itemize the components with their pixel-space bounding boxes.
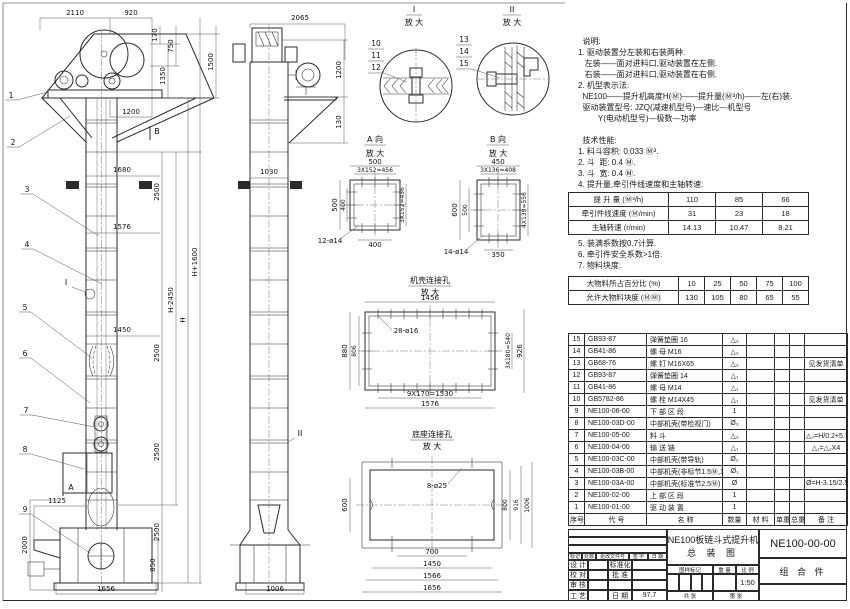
dim-label: 1350 bbox=[159, 67, 167, 85]
dim-label: 600 bbox=[451, 203, 459, 216]
mark-box bbox=[702, 574, 713, 591]
table-cell: △₁ bbox=[723, 370, 747, 382]
rev-header-date: 日 期 bbox=[648, 553, 667, 560]
table-cell: △₁ bbox=[723, 394, 747, 406]
table-cell bbox=[747, 358, 775, 370]
table-cell: 名 称 bbox=[647, 514, 723, 526]
balloon-label: 2 bbox=[11, 138, 16, 147]
note-line: 1. 驱动装置分左装和右装两种. bbox=[578, 47, 846, 58]
table-cell bbox=[790, 370, 805, 382]
dim-label: 1500 bbox=[207, 53, 215, 71]
dim-label: 1450 bbox=[113, 326, 131, 334]
dim-label: 500 bbox=[331, 198, 339, 211]
note-line: 6. 牵引件安全系数>1倍. bbox=[578, 249, 846, 260]
role-review: 审 核 bbox=[568, 580, 588, 590]
table-cell: 1 bbox=[723, 502, 747, 514]
table-cell: GB93-87 bbox=[585, 370, 647, 382]
table-cell: 1 bbox=[569, 502, 585, 514]
table-cell: 代 号 bbox=[585, 514, 647, 526]
table-cell bbox=[790, 406, 805, 418]
table-cell: 中部机壳(带导轨) bbox=[647, 454, 723, 466]
dim-label: 500 bbox=[368, 158, 381, 166]
hole-callout: 12-ø14 bbox=[318, 237, 343, 245]
section-mark-a: A bbox=[68, 483, 74, 492]
table-cell bbox=[747, 466, 775, 478]
table-row: 允许大物料块度 (ⓂⓂ)130105806555 bbox=[569, 291, 809, 305]
table-cell: 驱 动 装 置 bbox=[647, 502, 723, 514]
table-cell: 2 bbox=[569, 490, 585, 502]
table-cell: NE100-03B-00 bbox=[585, 466, 647, 478]
dim-label: 9X170=1530 bbox=[407, 390, 453, 398]
detail-subtitle: 放 大 bbox=[489, 148, 508, 158]
table-cell: 5 bbox=[569, 454, 585, 466]
table-row: 3NE100-03A-00中部机壳(标准节2.5Ⓜ)ØØ=H-3.15/2.5 bbox=[569, 478, 848, 490]
table-cell bbox=[805, 418, 848, 430]
dim-label: 2500 bbox=[153, 443, 161, 461]
balloon-label: 9 bbox=[23, 505, 28, 514]
weight-value bbox=[713, 574, 736, 591]
sign-cell bbox=[588, 570, 608, 580]
balloon-label: 3 bbox=[25, 185, 30, 194]
table-cell: Ø₁ bbox=[723, 466, 747, 478]
table-cell bbox=[747, 418, 775, 430]
table-cell: 总重 bbox=[790, 514, 805, 526]
dim-label: H-2450 bbox=[167, 287, 175, 313]
table-row: 序号代 号名 称数量材 料单重总重备 注 bbox=[569, 514, 848, 526]
dimensions-side: 2065 1200 130 1030 1006 II bbox=[246, 14, 348, 594]
table-cell bbox=[775, 454, 790, 466]
table-cell: 80 bbox=[731, 291, 757, 305]
table-cell bbox=[775, 394, 790, 406]
dim-label: 1656 bbox=[97, 585, 115, 593]
table-cell: 105 bbox=[705, 291, 731, 305]
title-block: 标记 处数 更改文件号 签 字 日 期 设 计 标准化 校 对 批 准 审 核 … bbox=[568, 529, 847, 601]
table-cell: △₁ bbox=[723, 442, 747, 454]
dim-label: 1200 bbox=[122, 108, 140, 116]
table-cell bbox=[775, 370, 790, 382]
detail-mark-i: I bbox=[65, 278, 67, 287]
table-cell: 10.47 bbox=[716, 221, 763, 235]
table-cell: 料 斗 bbox=[647, 430, 723, 442]
table-cell: 1 bbox=[723, 490, 747, 502]
table-cell: 14.13 bbox=[669, 221, 716, 235]
table-row: 10GB5782-86螺 栓 M14X45△₁见发货清单 bbox=[569, 394, 848, 406]
role-standard: 标准化 bbox=[608, 560, 632, 570]
hole-callout: 8-ø25 bbox=[427, 482, 447, 490]
dim-label: 916 bbox=[513, 499, 520, 511]
table-cell: Ø=H-3.15/2.5 bbox=[805, 478, 848, 490]
sign-cell bbox=[632, 570, 667, 580]
performance-table: 提 升 量 (Ⓜ³/h)1108566牵引件线速度 (Ⓜ/min)312318主… bbox=[568, 192, 809, 235]
dim-label: 750 bbox=[167, 39, 175, 52]
part-class: 组 合 件 bbox=[759, 558, 847, 584]
table-cell: 15 bbox=[569, 334, 585, 346]
table-row: 提 升 量 (Ⓜ³/h)1108566 bbox=[569, 193, 809, 207]
note-line: 2. 机型表示法: bbox=[578, 80, 846, 91]
scale-value: 1:50 bbox=[736, 574, 759, 591]
table-cell: 中部机壳(带检视门) bbox=[647, 418, 723, 430]
note-line: 7. 物料块度: bbox=[578, 260, 846, 271]
table-cell bbox=[805, 502, 848, 514]
table-cell: 8.21 bbox=[763, 221, 809, 235]
mark-box bbox=[667, 574, 679, 591]
note-line: NE100——提升机高度H(Ⓜ)——提升量(Ⓜ³/h)——左(右)装. bbox=[578, 91, 846, 102]
table-row: 1NE100-01-00驱 动 装 置1 bbox=[569, 502, 848, 514]
table-row: 7NE100-05-00料 斗△₂△₂=H/0.2+5.75 bbox=[569, 430, 848, 442]
dim-label: 2110 bbox=[66, 9, 84, 17]
table-row: 15GB93-87弹簧垫圈 16△₂ bbox=[569, 334, 848, 346]
wall-pad bbox=[290, 181, 302, 189]
table-cell: 8 bbox=[569, 418, 585, 430]
dim-label: 130 bbox=[335, 115, 343, 128]
table-cell bbox=[747, 382, 775, 394]
dim-label: 1576 bbox=[113, 223, 131, 231]
table-cell bbox=[747, 454, 775, 466]
detail-i: I 放 大 10 11 12 bbox=[368, 5, 452, 122]
detail-title: 机壳连接孔 bbox=[410, 275, 450, 285]
balloon-label: 4 bbox=[25, 240, 30, 249]
table-cell bbox=[790, 478, 805, 490]
table-row: 8NE100-03D-00中部机壳(带检视门)Ø₃ bbox=[569, 418, 848, 430]
balloon-label: 6 bbox=[23, 349, 28, 358]
table-cell: NE100-04-00 bbox=[585, 442, 647, 454]
table-cell bbox=[790, 454, 805, 466]
dim-label: H+1600 bbox=[191, 248, 199, 277]
sign-cell bbox=[632, 560, 667, 570]
table-cell bbox=[805, 382, 848, 394]
table-cell bbox=[775, 430, 790, 442]
sign-cell bbox=[588, 580, 608, 590]
drawing-no: NE100-00-00 bbox=[759, 529, 847, 558]
table-cell: △₂ bbox=[723, 430, 747, 442]
wall-pad bbox=[66, 181, 79, 189]
feed-chute bbox=[34, 540, 60, 558]
dim-label: 700 bbox=[425, 548, 438, 556]
table-row: 6NE100-04-00输 送 链△₁△₁=△₂X4 bbox=[569, 442, 848, 454]
table-cell: 55 bbox=[783, 291, 809, 305]
balloon-label: 1 bbox=[9, 91, 14, 100]
note-line: 2. 斗 距: 0.4 Ⓜ. bbox=[578, 157, 846, 168]
table-cell bbox=[790, 394, 805, 406]
table-cell bbox=[775, 406, 790, 418]
revision-row bbox=[568, 545, 667, 553]
table-cell bbox=[805, 490, 848, 502]
note-line: 说明: bbox=[578, 36, 846, 47]
table-cell: 100 bbox=[783, 277, 809, 291]
table-cell bbox=[790, 346, 805, 358]
table-cell: 130 bbox=[679, 291, 705, 305]
balloon-label: 5 bbox=[23, 303, 28, 312]
detail-subtitle: 放 大 bbox=[405, 17, 424, 27]
revision-row bbox=[568, 529, 667, 537]
table-cell: 10 bbox=[679, 277, 705, 291]
dim-label: 1566 bbox=[423, 572, 441, 580]
table-cell: 11 bbox=[569, 382, 585, 394]
table-cell bbox=[790, 334, 805, 346]
table-cell bbox=[747, 490, 775, 502]
dim-label: 806 bbox=[351, 345, 358, 357]
dim-label: 920 bbox=[124, 9, 137, 17]
table-cell bbox=[805, 346, 848, 358]
table-row: 大物料所占百分比 (%)10255075100 bbox=[569, 277, 809, 291]
table-cell: 材 料 bbox=[747, 514, 775, 526]
table-cell: 弹簧垫圈 16 bbox=[647, 334, 723, 346]
table-cell bbox=[790, 358, 805, 370]
table-cell: GB5782-86 bbox=[585, 394, 647, 406]
table-cell: 螺 母 M16 bbox=[647, 346, 723, 358]
table-cell: Ø₂ bbox=[723, 454, 747, 466]
table-cell: 50 bbox=[731, 277, 757, 291]
notes-block: 说明:1. 驱动装置分左装和右装两种. 左装——面对进料口,驱动装置在左侧. 右… bbox=[578, 36, 846, 190]
dim-label: 4X139=556 bbox=[521, 192, 528, 228]
detail-title: 底座连接孔 bbox=[412, 429, 452, 439]
table-cell bbox=[775, 490, 790, 502]
dim-label: 350 bbox=[491, 251, 504, 259]
mark-box bbox=[691, 574, 702, 591]
table-cell bbox=[747, 346, 775, 358]
table-cell bbox=[790, 442, 805, 454]
dim-label: 880 bbox=[341, 344, 349, 357]
detail-b-view: B 向 放 大 450 3X136=408 600 500 4X139=556 … bbox=[444, 134, 528, 259]
dim-label: 1030 bbox=[260, 168, 278, 176]
table-cell: 12 bbox=[569, 370, 585, 382]
detail-title: II bbox=[510, 5, 515, 14]
dim-label: 1006 bbox=[266, 585, 284, 593]
detail-a-view: A 向 放 大 500 3X152=456 500 400 3X152=456 … bbox=[318, 134, 408, 249]
table-cell bbox=[747, 478, 775, 490]
table-row: 牵引件线速度 (Ⓜ/min)312318 bbox=[569, 207, 809, 221]
table-cell bbox=[775, 502, 790, 514]
table-cell: NE100-03D-00 bbox=[585, 418, 647, 430]
wall-pad bbox=[238, 181, 250, 189]
wall-pad bbox=[139, 181, 152, 189]
detail-mark-ii: II bbox=[298, 429, 303, 438]
dim-label: 1125 bbox=[48, 497, 66, 505]
rev-header-count: 处数 bbox=[582, 553, 596, 560]
table-cell: 螺 母 M14 bbox=[647, 382, 723, 394]
dim-label: 1456 bbox=[421, 294, 439, 302]
detail-casing-holes: 机壳连接孔 放 大 1456 28-ø16 880 806 3X180=540 … bbox=[341, 275, 524, 408]
table-cell: NE100-02-00 bbox=[585, 490, 647, 502]
role-check: 校 对 bbox=[568, 570, 588, 580]
drawing-canvas: 2110 920 170 750 1350 1500 1200 1680 157… bbox=[0, 0, 565, 609]
table-cell: 弹簧垫圈 14 bbox=[647, 370, 723, 382]
table-cell: 见发货清单 bbox=[805, 394, 848, 406]
table-cell bbox=[805, 454, 848, 466]
table-row: 9NE100-06-00下 部 区 段1 bbox=[569, 406, 848, 418]
table-cell: 备 注 bbox=[805, 514, 848, 526]
drawing-title-line2: 总 装 图 bbox=[687, 547, 739, 560]
drawing-title-line1: NE100板链斗式提升机 bbox=[668, 534, 759, 547]
table-cell bbox=[790, 382, 805, 394]
table-cell bbox=[747, 370, 775, 382]
table-cell: Ø₃ bbox=[723, 418, 747, 430]
dim-label: 926 bbox=[516, 344, 524, 358]
section-mark-b: B bbox=[154, 127, 160, 136]
table-cell: 65 bbox=[757, 291, 783, 305]
note-line: 1. 料斗容积: 0.033 Ⓜ³. bbox=[578, 146, 846, 157]
table-cell bbox=[747, 334, 775, 346]
table-cell: 见发货清单 bbox=[805, 358, 848, 370]
role-design: 设 计 bbox=[568, 560, 588, 570]
table-row: 主轴转速 (r/min)14.1310.478.21 bbox=[569, 221, 809, 235]
table-cell: 螺 栓 M14X45 bbox=[647, 394, 723, 406]
table-cell bbox=[747, 394, 775, 406]
dim-label: 2000 bbox=[21, 536, 29, 554]
table-cell bbox=[790, 502, 805, 514]
table-cell: NE100-03C-00 bbox=[585, 454, 647, 466]
empty-cell bbox=[759, 584, 847, 601]
table-cell bbox=[775, 382, 790, 394]
drawing-sheet: 2110 920 170 750 1350 1500 1200 1680 157… bbox=[0, 0, 850, 609]
boot-section bbox=[28, 528, 158, 590]
drawing-title: NE100板链斗式提升机 总 装 图 bbox=[667, 529, 759, 565]
table-cell: 中部机壳(标准节2.5Ⓜ) bbox=[647, 478, 723, 490]
table-cell: GB41-86 bbox=[585, 382, 647, 394]
balloon-label: 14 bbox=[459, 47, 469, 56]
balloon-label: 15 bbox=[459, 59, 469, 68]
dim-label: 400 bbox=[368, 241, 381, 249]
side-view: 2065 1200 130 1030 1006 II bbox=[230, 14, 348, 594]
rev-header-sign: 签 字 bbox=[629, 553, 648, 560]
dim-label: 3X152=456 bbox=[357, 167, 393, 174]
weight-header: 重 量 bbox=[713, 565, 736, 574]
table-cell: 螺 钉 M16X65 bbox=[647, 358, 723, 370]
table-cell: Ø bbox=[723, 478, 747, 490]
detail-base-holes: 底座连接孔 放 大 8-ø25 600 800 916 1006 700 145… bbox=[341, 429, 532, 592]
dim-label: 500 bbox=[462, 204, 469, 216]
dim-label: 800 bbox=[502, 499, 509, 511]
table-row: 14GB41-86螺 母 M16△₂ bbox=[569, 346, 848, 358]
table-cell: △₁=△₂X4 bbox=[805, 442, 848, 454]
table-cell: 主轴转速 (r/min) bbox=[569, 221, 669, 235]
table-cell: 上 部 区 段 bbox=[647, 490, 723, 502]
table-cell: 输 送 链 bbox=[647, 442, 723, 454]
table-cell: 14 bbox=[569, 346, 585, 358]
table-row: 11GB41-86螺 母 M14△₁ bbox=[569, 382, 848, 394]
balloon-label: 10 bbox=[371, 39, 381, 48]
table-cell: GB41-86 bbox=[585, 346, 647, 358]
table-cell: 66 bbox=[763, 193, 809, 207]
dim-label: 1200 bbox=[335, 61, 343, 79]
revision-row bbox=[568, 537, 667, 545]
dim-label: 1656 bbox=[423, 584, 441, 592]
sample-mark-header: 图样标记 bbox=[667, 565, 713, 574]
dim-label: 450 bbox=[491, 158, 504, 166]
dim-label: 3X152=456 bbox=[399, 187, 406, 223]
table-cell: NE100-03A-00 bbox=[585, 478, 647, 490]
table-cell: 110 bbox=[669, 193, 716, 207]
dim-label: 2065 bbox=[291, 14, 309, 22]
table-row: 5NE100-03C-00中部机壳(带导轨)Ø₂ bbox=[569, 454, 848, 466]
table-cell bbox=[775, 358, 790, 370]
table-cell: 3 bbox=[569, 478, 585, 490]
table-cell: 31 bbox=[669, 207, 716, 221]
table-row: 12GB93-87弹簧垫圈 14△₁ bbox=[569, 370, 848, 382]
table-cell: 9 bbox=[569, 406, 585, 418]
table-cell: 1 bbox=[723, 406, 747, 418]
table-cell: 10 bbox=[569, 394, 585, 406]
table-cell bbox=[805, 406, 848, 418]
notes-block-2: 5. 装满系数按0.7计算.6. 牵引件安全系数>1倍.7. 物料块度: bbox=[578, 238, 846, 271]
table-cell: 单重 bbox=[775, 514, 790, 526]
table-cell bbox=[775, 346, 790, 358]
table-cell: 中部机壳(非标节1.5Ⓜ,1Ⓜ) bbox=[647, 466, 723, 478]
detail-title: B 向 bbox=[490, 134, 506, 144]
detail-subtitle: 放 大 bbox=[423, 441, 442, 451]
note-line: 3. 斗 宽: 0.4 Ⓜ. bbox=[578, 168, 846, 179]
table-cell: 提 升 量 (Ⓜ³/h) bbox=[569, 193, 669, 207]
role-approve: 批 准 bbox=[608, 570, 632, 580]
note-line: 5. 装满系数按0.7计算. bbox=[578, 238, 846, 249]
table-cell bbox=[775, 478, 790, 490]
detail-title: A 向 bbox=[367, 134, 383, 144]
table-cell: 大物料所占百分比 (%) bbox=[569, 277, 679, 291]
scale-header: 比 例 bbox=[736, 565, 759, 574]
balloon-label: 13 bbox=[459, 35, 469, 44]
table-cell bbox=[790, 418, 805, 430]
table-cell bbox=[805, 334, 848, 346]
bom-table: 15GB93-87弹簧垫圈 16△₂14GB41-86螺 母 M16△₂13GB… bbox=[568, 333, 848, 526]
dim-label: 1006 bbox=[524, 497, 531, 512]
note-line: 驱动装置型号: JZQ(减速机型号)—速比—机型号 bbox=[578, 102, 846, 113]
table-cell: 75 bbox=[757, 277, 783, 291]
detail-subtitle: 放 大 bbox=[503, 17, 522, 27]
boot-section-side bbox=[230, 505, 310, 590]
dim-label: H bbox=[179, 317, 187, 322]
dim-label: 1680 bbox=[113, 166, 131, 174]
table-cell: NE100-06-00 bbox=[585, 406, 647, 418]
detail-subtitle: 放 大 bbox=[366, 148, 385, 158]
note-line: 技术性能: bbox=[578, 135, 846, 146]
note-line: 4. 提升量,牵引件线速度和主轴转速: bbox=[578, 179, 846, 190]
dim-label: 1450 bbox=[423, 560, 441, 568]
table-cell bbox=[747, 502, 775, 514]
dim-label: 3X180=540 bbox=[505, 333, 512, 369]
lump-size-table: 大物料所占百分比 (%)10255075100允许大物料块度 (ⓂⓂ)13010… bbox=[568, 276, 809, 305]
dim-label: 400 bbox=[340, 199, 347, 211]
table-row: 4NE100-03B-00中部机壳(非标节1.5Ⓜ,1Ⓜ)Ø₁ bbox=[569, 466, 848, 478]
balloon-label: 7 bbox=[24, 406, 29, 415]
balloon-label: 8 bbox=[23, 445, 28, 454]
mark-box bbox=[679, 574, 691, 591]
sign-cell bbox=[588, 560, 608, 570]
table-cell bbox=[747, 406, 775, 418]
table-cell: 4 bbox=[569, 466, 585, 478]
table-cell: △₂=H/0.2+5.75 bbox=[805, 430, 848, 442]
table-cell bbox=[775, 334, 790, 346]
table-cell: △₁ bbox=[723, 382, 747, 394]
table-cell: GB93-87 bbox=[585, 334, 647, 346]
table-cell bbox=[747, 430, 775, 442]
balloon-label: 12 bbox=[371, 63, 381, 72]
dim-label: 600 bbox=[341, 498, 349, 511]
table-cell: 7 bbox=[569, 430, 585, 442]
note-line bbox=[578, 124, 846, 135]
rev-header-doc: 更改文件号 bbox=[596, 553, 629, 560]
table-cell: 数量 bbox=[723, 514, 747, 526]
dim-label: 2500 bbox=[153, 344, 161, 362]
sign-cell bbox=[632, 580, 667, 590]
note-line: 左装——面对进料口,驱动装置在左侧. bbox=[578, 58, 846, 69]
table-cell: 23 bbox=[716, 207, 763, 221]
hole-callout: 14-ø14 bbox=[444, 248, 469, 256]
table-cell: 85 bbox=[716, 193, 763, 207]
sheet-border-right bbox=[846, 3, 847, 601]
table-cell bbox=[790, 466, 805, 478]
table-cell: 6 bbox=[569, 442, 585, 454]
table-cell: NE100-01-00 bbox=[585, 502, 647, 514]
